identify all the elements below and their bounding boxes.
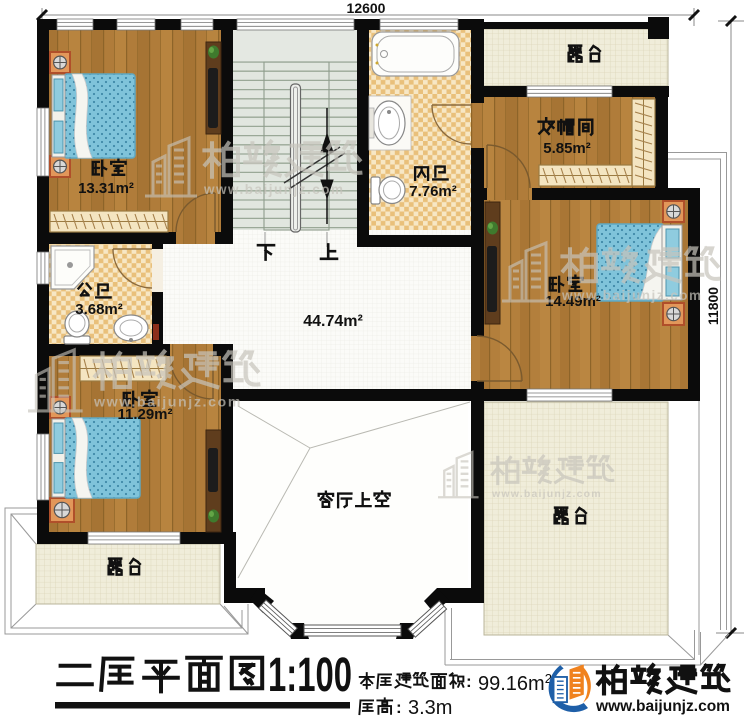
svg-text:1:100: 1:100 (268, 649, 352, 702)
svg-text:3.68m²: 3.68m² (75, 301, 123, 318)
svg-text:3.3m: 3.3m (408, 697, 452, 719)
svg-text:www.baijunjz.com: www.baijunjz.com (595, 698, 730, 715)
svg-text:5.85m²: 5.85m² (543, 140, 591, 157)
svg-text:www.baijunjz.com: www.baijunjz.com (203, 182, 345, 197)
svg-text:www.baijunjz.com: www.baijunjz.com (93, 395, 242, 411)
svg-text:www.baijunjz.com: www.baijunjz.com (491, 488, 602, 500)
svg-text::: : (466, 672, 472, 691)
svg-text:7.76m²: 7.76m² (409, 183, 457, 200)
svg-text::: : (396, 698, 402, 717)
svg-text:www.baijunjz.com: www.baijunjz.com (561, 288, 703, 303)
svg-text:99.16m2: 99.16m2 (478, 671, 552, 695)
svg-text:11800: 11800 (705, 287, 721, 325)
svg-text:13.31m²: 13.31m² (78, 180, 134, 197)
svg-text:44.74m²: 44.74m² (303, 313, 363, 330)
svg-text:12600: 12600 (347, 0, 386, 16)
